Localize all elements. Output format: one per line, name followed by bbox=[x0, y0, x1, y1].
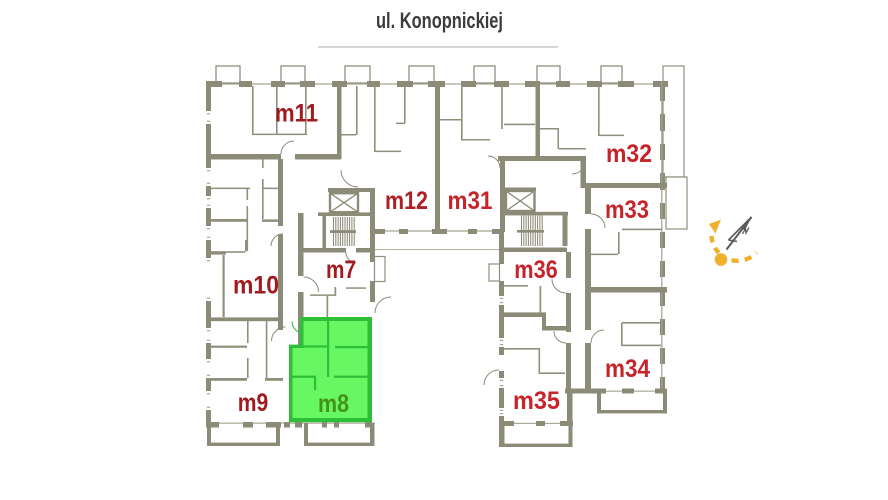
svg-text:m32: m32 bbox=[606, 140, 652, 168]
svg-text:m8: m8 bbox=[318, 390, 349, 418]
svg-text:m11: m11 bbox=[275, 100, 318, 128]
svg-text:m36: m36 bbox=[514, 256, 558, 284]
svg-text:m7: m7 bbox=[326, 256, 356, 284]
svg-text:ul. Konopnickiej: ul. Konopnickiej bbox=[376, 8, 503, 33]
svg-text:m10: m10 bbox=[233, 272, 279, 300]
svg-text:m33: m33 bbox=[605, 196, 649, 224]
svg-text:m9: m9 bbox=[238, 389, 269, 417]
svg-text:m31: m31 bbox=[448, 187, 493, 215]
svg-text:m35: m35 bbox=[513, 387, 560, 415]
svg-text:m34: m34 bbox=[605, 355, 650, 383]
svg-text:m12: m12 bbox=[385, 187, 428, 215]
